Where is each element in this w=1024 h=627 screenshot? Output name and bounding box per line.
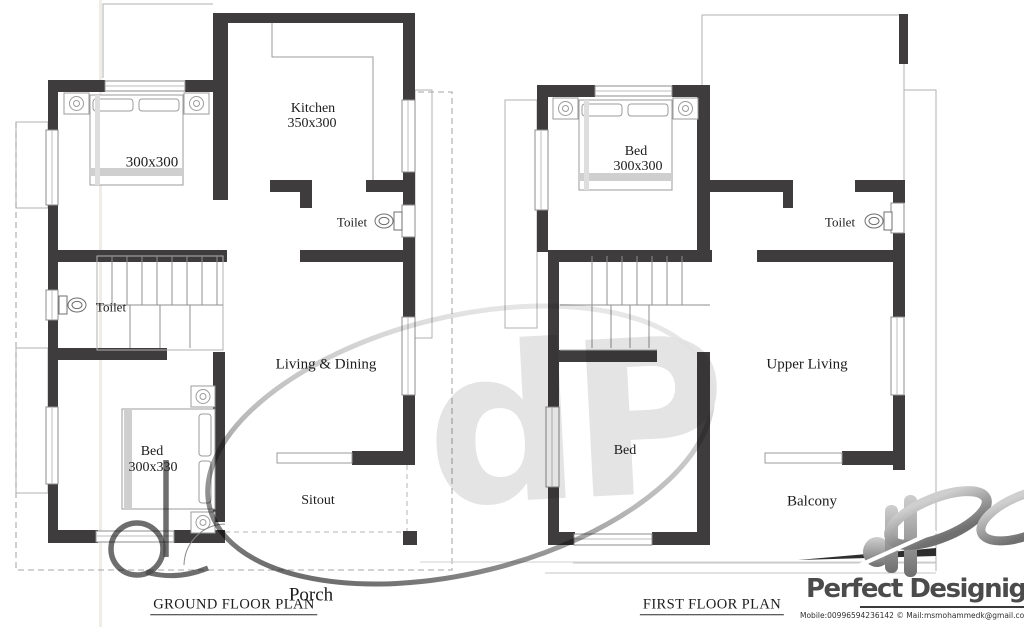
- room-label-first-bed-top: Bed: [625, 145, 648, 159]
- toilet-icon-ground-right: [375, 212, 402, 230]
- room-label-living-dining: Living & Dining: [276, 358, 377, 373]
- room-label-upper-living: Upper Living: [766, 358, 847, 373]
- room-label-bed: Bed: [141, 445, 164, 459]
- first-floor-plan-title: FIRST FLOOR PLAN: [640, 597, 784, 615]
- sitout-bench: [277, 453, 352, 463]
- room-label-toilet-right: Toilet: [337, 216, 367, 229]
- floor-plan-sheet: dP Kitchen 350x300 300x300 Toilet Toilet…: [0, 0, 1024, 627]
- room-label-sitout: Sitout: [301, 494, 334, 508]
- left-sunshade-bottom: [16, 348, 48, 493]
- room-label-balcony: Balcony: [787, 495, 837, 510]
- watermark-monogram: dP: [420, 290, 726, 556]
- ground-floor-plan-title: GROUND FLOOR PLAN: [150, 597, 317, 615]
- brand-name: Perfect Designign: [806, 574, 1024, 604]
- room-label-first-bed-top-size: 300x300: [614, 160, 663, 174]
- brand-contact-text: Mobile:00996594236142 © Mail:msmohammedk…: [800, 611, 1024, 620]
- right-sunshade: [415, 90, 432, 338]
- brand-contact: Mobile:00996594236142 © Mail:msmohammedk…: [800, 611, 1024, 620]
- room-label-bedroom-size: 300x300: [126, 156, 179, 171]
- left-sunshade-first: [505, 100, 537, 328]
- room-label-toilet-left: Toilet: [96, 301, 126, 314]
- terrace-outline: [702, 15, 904, 180]
- room-label-first-bed-bottom: Bed: [614, 444, 637, 458]
- toilet-icon-first-floor: [865, 212, 892, 230]
- floor-plan-drawing: dP: [0, 0, 1024, 627]
- room-label-kitchen-size: 350x300: [288, 117, 337, 131]
- ground-walls: [48, 13, 417, 545]
- top-sunshade-outline: [103, 4, 213, 78]
- room-label-bed-size: 300x330: [129, 461, 178, 475]
- room-label-kitchen: Kitchen: [291, 102, 335, 116]
- toilet-icon-ground-left: [59, 296, 86, 314]
- brand-rule: [860, 606, 1024, 608]
- room-label-first-toilet: Toilet: [825, 216, 855, 229]
- left-sunshade-top: [16, 122, 48, 208]
- bed-furniture-bedroom1: [64, 93, 209, 185]
- balcony-bench: [765, 453, 842, 463]
